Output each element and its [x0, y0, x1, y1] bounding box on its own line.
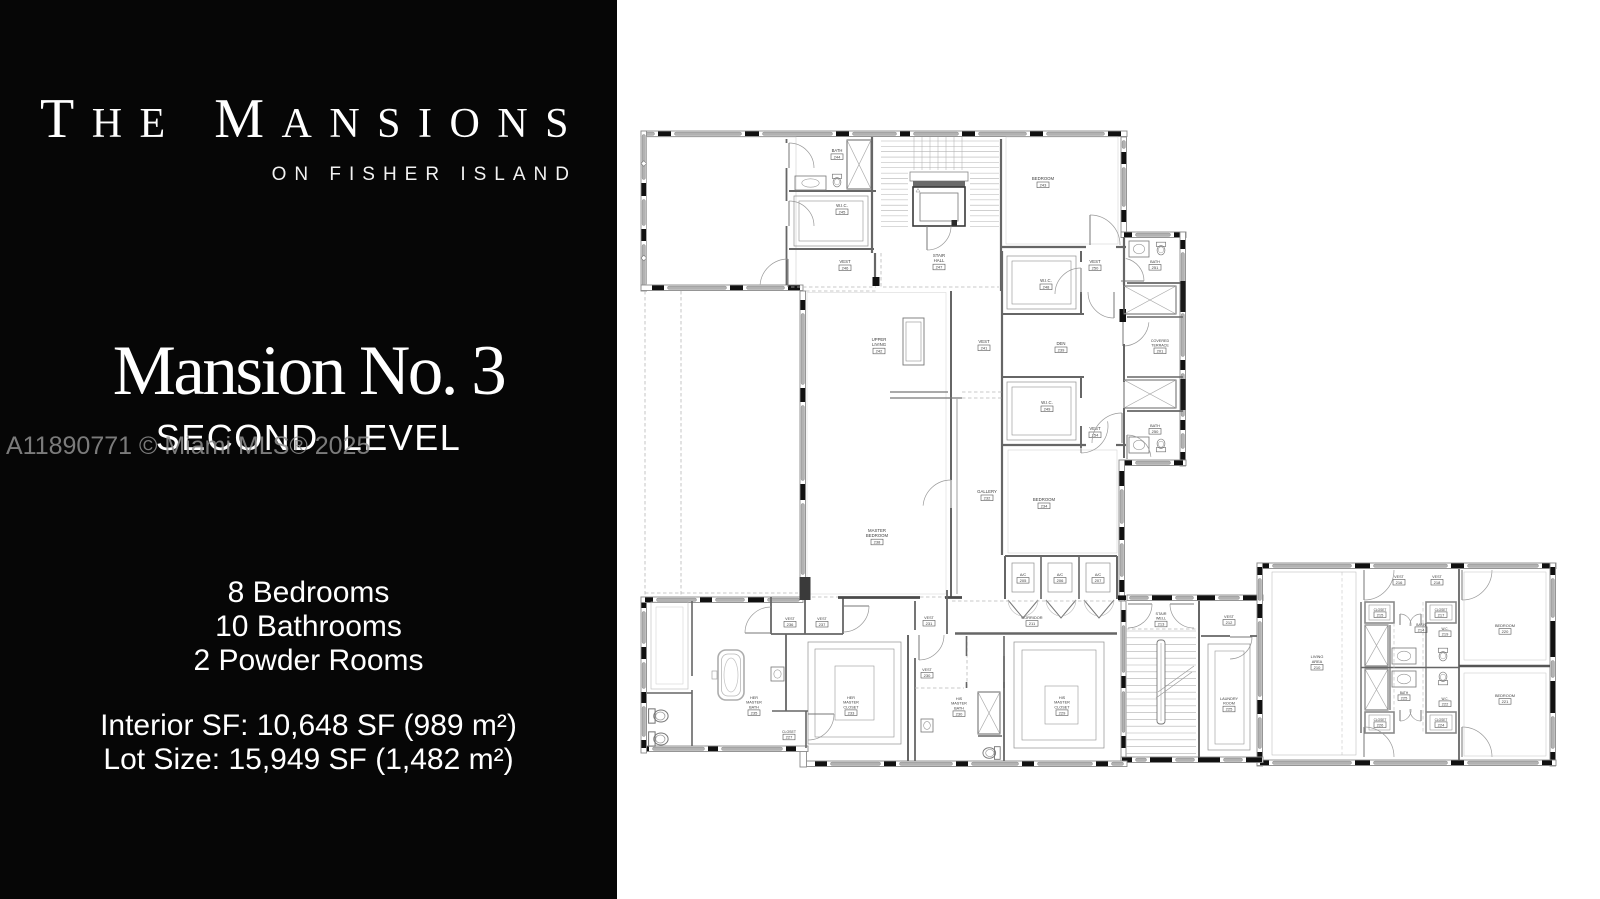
svg-text:COVERED: COVERED — [1151, 339, 1170, 343]
svg-text:BEDROOM: BEDROOM — [866, 533, 889, 538]
svg-text:224: 224 — [1438, 722, 1445, 727]
svg-text:205: 205 — [1020, 578, 1027, 583]
svg-text:VEST: VEST — [978, 339, 990, 344]
svg-text:221: 221 — [1502, 699, 1509, 704]
svg-text:VEST: VEST — [1432, 575, 1442, 579]
svg-text:HER: HER — [750, 696, 758, 700]
svg-text:248: 248 — [1043, 284, 1050, 289]
svg-text:W.I.C.: W.I.C. — [836, 203, 848, 208]
svg-text:VEST: VEST — [1089, 426, 1101, 431]
svg-text:VEST: VEST — [839, 259, 851, 264]
svg-text:218: 218 — [1434, 580, 1441, 585]
svg-text:BATH: BATH — [954, 706, 964, 710]
svg-text:233: 233 — [848, 710, 855, 715]
svg-text:250: 250 — [1092, 265, 1099, 270]
svg-text:241: 241 — [981, 345, 988, 350]
svg-text:MASTER: MASTER — [746, 701, 762, 705]
svg-text:235: 235 — [751, 710, 758, 715]
svg-text:215: 215 — [1377, 612, 1384, 617]
svg-text:216: 216 — [1396, 580, 1403, 585]
svg-text:230: 230 — [956, 711, 963, 716]
svg-text:236: 236 — [787, 622, 794, 627]
svg-text:225: 225 — [1401, 695, 1408, 700]
svg-text:225: 225 — [1226, 707, 1233, 712]
svg-text:207: 207 — [1095, 578, 1102, 583]
svg-text:BEDROOM: BEDROOM — [1033, 497, 1056, 502]
svg-text:244: 244 — [834, 154, 841, 159]
svg-text:238: 238 — [874, 540, 881, 545]
svg-text:210: 210 — [1314, 665, 1321, 670]
svg-text:243: 243 — [1040, 182, 1047, 187]
svg-text:VEST: VEST — [1394, 575, 1404, 579]
svg-text:MASTER: MASTER — [843, 701, 859, 705]
svg-text:247: 247 — [936, 265, 943, 270]
svg-text:VEST: VEST — [922, 668, 932, 672]
svg-text:BATH: BATH — [749, 705, 759, 709]
svg-text:229: 229 — [1059, 710, 1066, 715]
svg-text:250: 250 — [1152, 429, 1159, 434]
svg-text:232: 232 — [984, 495, 991, 500]
svg-text:AREA: AREA — [1312, 659, 1323, 664]
svg-text:217: 217 — [1438, 612, 1445, 617]
svg-text:HER: HER — [847, 696, 855, 700]
svg-text:211: 211 — [1029, 621, 1036, 626]
svg-text:201: 201 — [1157, 348, 1164, 353]
svg-text:TERRACE: TERRACE — [1151, 344, 1169, 348]
svg-text:W.I.C.: W.I.C. — [1041, 400, 1053, 405]
svg-text:226: 226 — [1377, 722, 1384, 727]
svg-text:HIS: HIS — [956, 697, 963, 701]
svg-text:VEST: VEST — [785, 617, 795, 621]
svg-text:LAUNDRY: LAUNDRY — [1220, 697, 1239, 701]
svg-text:HALL: HALL — [934, 258, 945, 263]
svg-text:VEST: VEST — [1089, 259, 1101, 264]
svg-text:BATH: BATH — [1150, 260, 1160, 264]
svg-text:VEST: VEST — [1224, 615, 1235, 619]
svg-text:BEDROOM: BEDROOM — [1495, 623, 1515, 628]
svg-text:234: 234 — [1041, 503, 1048, 508]
svg-text:CORRIDOR: CORRIDOR — [1021, 615, 1042, 620]
svg-text:LIVING: LIVING — [872, 342, 887, 347]
svg-text:219: 219 — [1442, 631, 1449, 636]
svg-text:A/C: A/C — [1095, 573, 1102, 577]
svg-text:VEST: VEST — [817, 617, 827, 621]
svg-text:DEN: DEN — [1056, 341, 1065, 346]
svg-text:227: 227 — [786, 735, 793, 740]
svg-text:239: 239 — [1058, 347, 1065, 352]
svg-text:BEDROOM: BEDROOM — [1032, 176, 1055, 181]
svg-text:220: 220 — [1502, 629, 1509, 634]
svg-text:CLOSET: CLOSET — [1054, 705, 1070, 709]
svg-text:246: 246 — [842, 265, 849, 270]
svg-text:206: 206 — [1057, 578, 1064, 583]
svg-text:230: 230 — [924, 673, 931, 678]
svg-text:222: 222 — [1442, 701, 1449, 706]
svg-text:BATH: BATH — [1150, 424, 1160, 428]
svg-text:GALLERY: GALLERY — [977, 489, 997, 494]
svg-text:BATH: BATH — [832, 148, 843, 153]
svg-text:213: 213 — [1158, 622, 1165, 627]
svg-text:ROOM: ROOM — [1223, 702, 1235, 706]
svg-text:A/C: A/C — [1020, 573, 1027, 577]
svg-text:242: 242 — [876, 349, 883, 354]
svg-text:WELL: WELL — [1156, 617, 1166, 621]
svg-text:245: 245 — [839, 209, 846, 214]
svg-text:212: 212 — [1226, 620, 1233, 625]
svg-text:W.I.C.: W.I.C. — [1040, 278, 1052, 283]
svg-text:CLOSET: CLOSET — [782, 730, 797, 734]
svg-text:CLOSET: CLOSET — [843, 705, 859, 709]
svg-text:237: 237 — [819, 622, 826, 627]
svg-text:A/C: A/C — [1057, 573, 1064, 577]
svg-text:249: 249 — [1044, 406, 1051, 411]
svg-text:251: 251 — [1152, 265, 1159, 270]
svg-text:VEST: VEST — [924, 616, 934, 620]
svg-text:214: 214 — [1418, 627, 1425, 632]
svg-text:HIS: HIS — [1059, 696, 1066, 700]
svg-text:MASTER: MASTER — [951, 702, 967, 706]
svg-text:231: 231 — [926, 621, 933, 626]
svg-text:MASTER: MASTER — [1054, 701, 1070, 705]
svg-text:BEDROOM: BEDROOM — [1495, 693, 1515, 698]
svg-text:STAIR: STAIR — [1156, 612, 1167, 616]
